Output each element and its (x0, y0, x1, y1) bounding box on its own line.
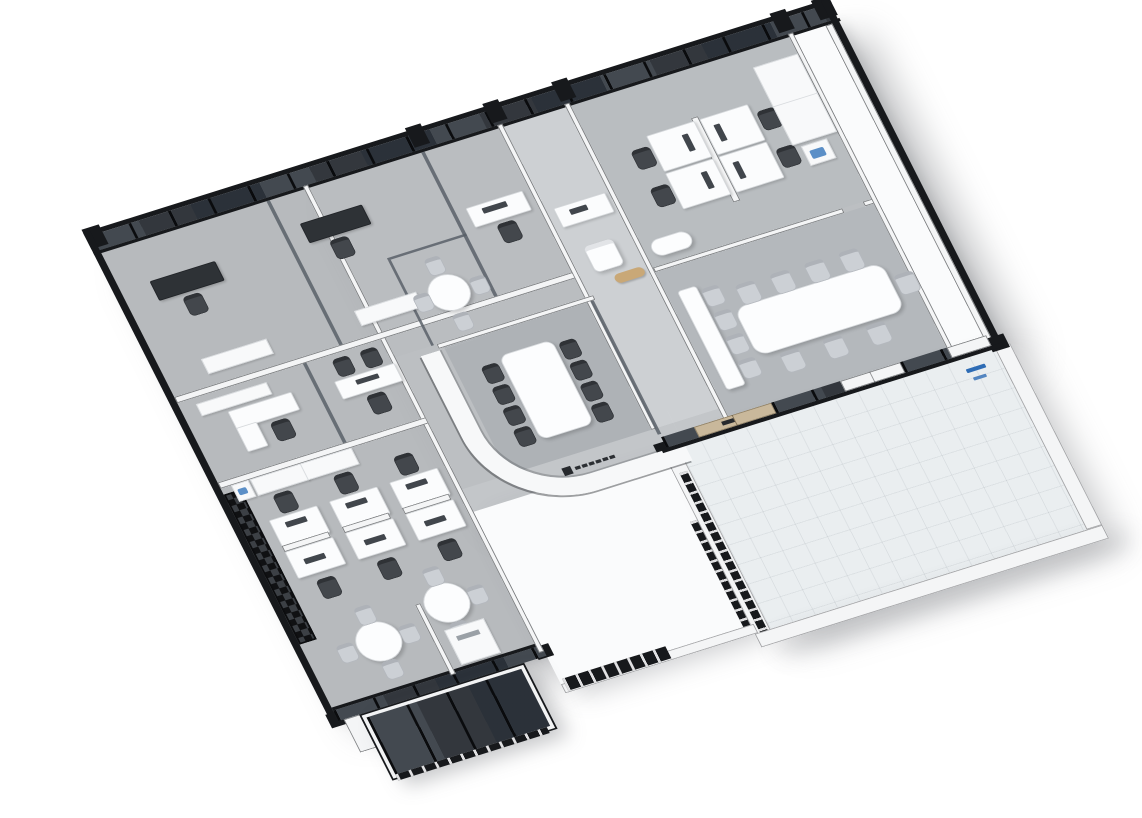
water-bottle-blue (237, 487, 249, 496)
appliance-slot (456, 629, 481, 641)
door-seam (869, 372, 875, 383)
logo-glyph (595, 459, 602, 464)
logo-glyph (588, 461, 595, 466)
isometric-plan (6, 0, 1120, 818)
entrance-door-logo (721, 418, 735, 426)
printer-blue-panel (809, 147, 827, 160)
logo-glyph (581, 463, 588, 468)
office-floorplan-render (0, 0, 1142, 818)
logo-glyph (609, 455, 616, 460)
logo-glyph (602, 457, 609, 462)
logo-glyph (575, 465, 582, 470)
